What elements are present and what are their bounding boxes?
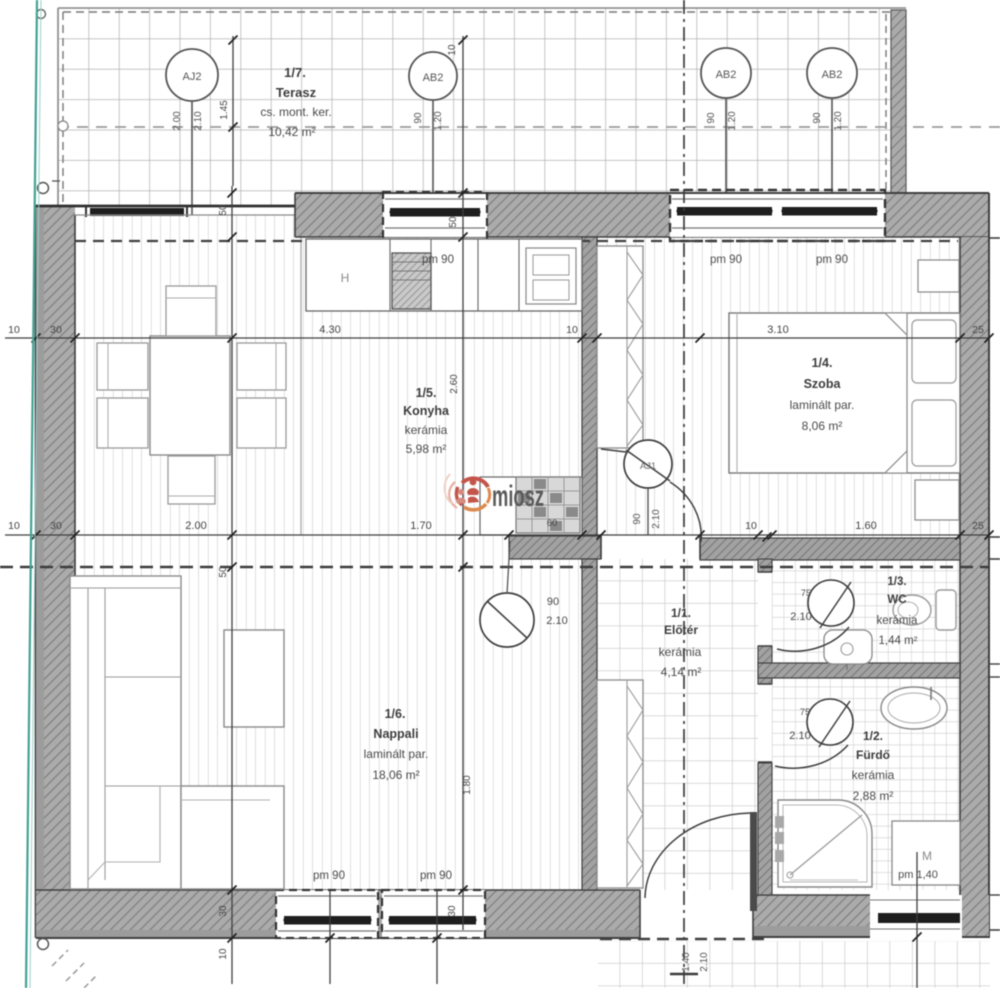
svg-text:30: 30	[218, 905, 229, 917]
svg-text:10: 10	[8, 324, 20, 336]
svg-text:1.80: 1.80	[462, 775, 473, 795]
svg-text:1/5.: 1/5.	[416, 386, 437, 400]
svg-text:4,14 m²: 4,14 m²	[661, 665, 702, 679]
svg-text:laminált par.: laminált par.	[790, 398, 855, 412]
svg-text:pm 90: pm 90	[710, 254, 742, 266]
svg-text:10: 10	[8, 520, 20, 532]
svg-text:90: 90	[812, 112, 823, 124]
svg-text:pm 90: pm 90	[420, 870, 452, 882]
svg-text:50: 50	[448, 216, 459, 228]
svg-text:5,98 m²: 5,98 m²	[406, 442, 447, 456]
svg-text:kerámia: kerámia	[405, 423, 448, 437]
svg-text:H: H	[341, 271, 350, 285]
svg-text:AJ1: AJ1	[640, 461, 656, 472]
svg-text:1/2.: 1/2.	[863, 729, 883, 743]
svg-text:AB2: AB2	[423, 72, 444, 84]
svg-text:pm 1,40: pm 1,40	[898, 869, 938, 881]
svg-text:10: 10	[447, 44, 458, 56]
svg-text:2.60: 2.60	[449, 374, 460, 394]
svg-text:2.10: 2.10	[699, 952, 710, 972]
svg-text:90: 90	[706, 112, 717, 124]
svg-text:30: 30	[447, 905, 458, 917]
svg-text:Szoba: Szoba	[804, 377, 842, 391]
svg-text:AJ2: AJ2	[183, 71, 202, 83]
svg-text:2,88 m²: 2,88 m²	[853, 789, 894, 803]
svg-text:25: 25	[972, 520, 984, 532]
svg-text:1/3.: 1/3.	[887, 576, 906, 588]
svg-text:kerámia: kerámia	[852, 768, 895, 782]
svg-text:M: M	[922, 849, 932, 863]
svg-text:50: 50	[218, 204, 229, 216]
svg-text:laminált par.: laminált par.	[364, 747, 429, 761]
svg-text:75: 75	[800, 707, 811, 718]
svg-text:WC: WC	[887, 594, 906, 606]
svg-text:30: 30	[50, 520, 62, 532]
svg-text:kerámia: kerámia	[877, 615, 919, 627]
svg-text:Előtér: Előtér	[664, 623, 698, 637]
svg-text:cs. mont. ker.: cs. mont. ker.	[260, 105, 331, 119]
svg-text:pm 90: pm 90	[816, 254, 848, 266]
svg-text:AB2: AB2	[822, 69, 843, 81]
svg-text:10: 10	[566, 324, 578, 336]
svg-text:90: 90	[547, 596, 559, 608]
svg-text:1.60: 1.60	[855, 520, 876, 532]
svg-text:Nappali: Nappali	[373, 727, 418, 741]
svg-text:1,44 m²: 1,44 m²	[879, 635, 918, 647]
svg-text:4.30: 4.30	[319, 324, 340, 336]
svg-text:1.70: 1.70	[410, 520, 431, 532]
svg-text:1/4.: 1/4.	[812, 356, 833, 370]
svg-text:50: 50	[218, 566, 229, 578]
svg-text:Terasz: Terasz	[276, 85, 317, 100]
svg-text:90: 90	[413, 112, 424, 124]
svg-text:60: 60	[547, 518, 558, 529]
svg-text:1/6.: 1/6.	[385, 707, 406, 721]
svg-text:AB2: AB2	[716, 69, 737, 81]
svg-text:pm 90: pm 90	[422, 254, 454, 266]
svg-text:1.20: 1.20	[833, 111, 844, 131]
svg-text:2.10: 2.10	[789, 730, 810, 742]
svg-text:2.10: 2.10	[193, 111, 204, 131]
svg-text:1.40: 1.40	[681, 952, 692, 972]
svg-text:1.45: 1.45	[219, 100, 230, 120]
svg-text:30: 30	[50, 324, 62, 336]
svg-text:25: 25	[972, 324, 984, 336]
svg-text:3.10: 3.10	[767, 324, 788, 336]
svg-text:1.20: 1.20	[433, 111, 444, 131]
svg-text:2.10: 2.10	[651, 509, 662, 529]
svg-text:75: 75	[801, 588, 812, 599]
svg-text:18,06 m²: 18,06 m²	[372, 768, 419, 782]
svg-text:1/1.: 1/1.	[671, 606, 691, 620]
svg-text:10: 10	[218, 948, 229, 960]
svg-text:2.10: 2.10	[546, 615, 567, 627]
svg-text:8,06 m²: 8,06 m²	[802, 419, 843, 433]
svg-text:pm 90: pm 90	[313, 870, 345, 882]
svg-text:1.20: 1.20	[727, 111, 738, 131]
svg-text:Konyha: Konyha	[403, 404, 450, 418]
svg-text:Fürdő: Fürdő	[856, 748, 890, 762]
svg-text:2.10: 2.10	[790, 611, 811, 623]
svg-text:90: 90	[632, 513, 643, 525]
svg-text:kerámia: kerámia	[659, 645, 702, 659]
svg-text:miosz: miosz	[492, 480, 544, 513]
svg-text:10: 10	[745, 520, 757, 532]
svg-text:2.00: 2.00	[172, 111, 183, 131]
svg-text:2.00: 2.00	[185, 520, 206, 532]
svg-text:1/7.: 1/7.	[284, 65, 306, 80]
svg-text:10,42 m²: 10,42 m²	[268, 125, 315, 139]
